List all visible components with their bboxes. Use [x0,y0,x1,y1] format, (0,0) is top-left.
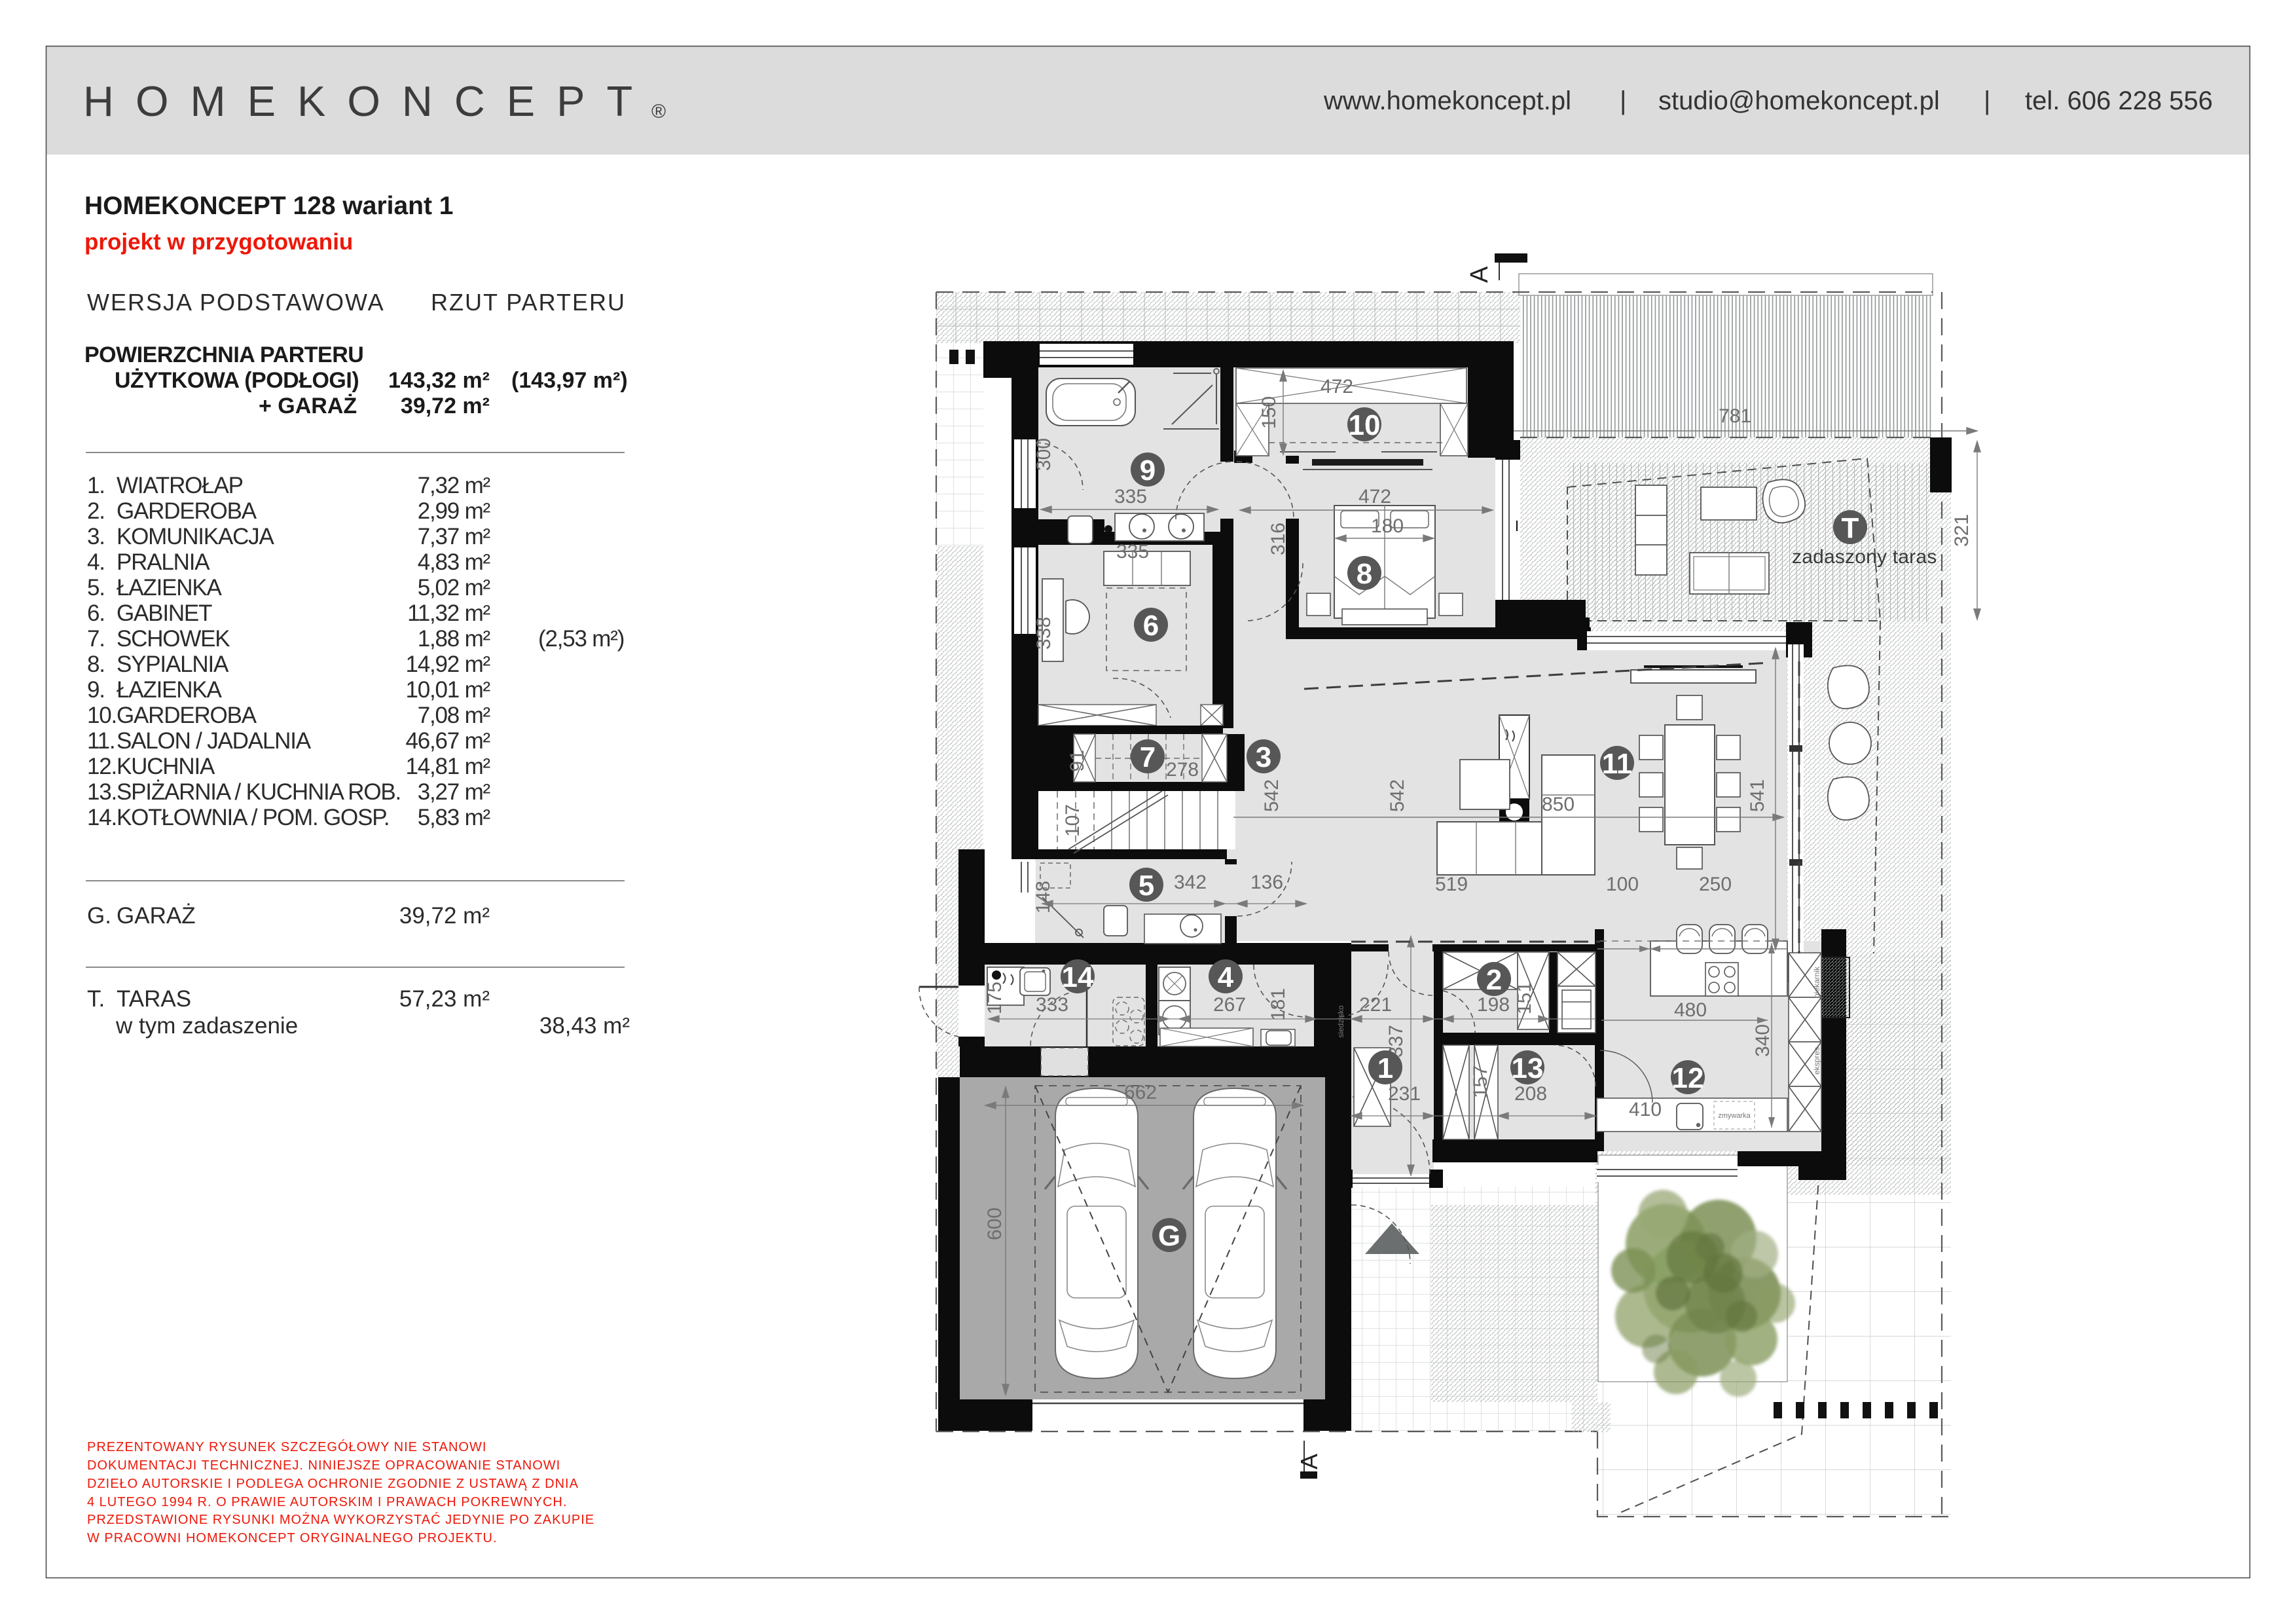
svg-text:410: 410 [1629,1099,1662,1120]
svg-text:GABINET: GABINET [117,600,212,626]
svg-text:221: 221 [1359,994,1392,1016]
svg-text:studio@homekoncept.pl: studio@homekoncept.pl [1658,86,1940,115]
svg-text:10,01 m²: 10,01 m² [405,677,490,703]
svg-text:ekspres: ekspres [1812,1047,1821,1075]
svg-text:GARDEROBA: GARDEROBA [117,498,257,524]
svg-text:piekarnik: piekarnik [1812,966,1821,998]
svg-text:340: 340 [1752,1024,1774,1057]
svg-text:91: 91 [1066,750,1088,771]
svg-text:5,02 m²: 5,02 m² [418,575,490,600]
svg-text:W PRACOWNI HOMEKONCEPT ORYGINA: W PRACOWNI HOMEKONCEPT ORYGINALNEGO PROJ… [87,1531,498,1545]
svg-text:480: 480 [1674,999,1707,1021]
svg-text:316: 316 [1267,523,1289,555]
svg-text:tel. 606 228 556: tel. 606 228 556 [2025,86,2213,115]
svg-text:(143,97 m²): (143,97 m²) [511,368,628,393]
svg-text:SPIŻARNIA / KUCHNIA ROB.: SPIŻARNIA / KUCHNIA ROB. [117,779,401,805]
svg-text:542: 542 [1261,779,1283,812]
svg-text:300: 300 [1033,438,1055,471]
svg-text:9.: 9. [87,677,105,703]
svg-text:11.: 11. [87,728,115,754]
svg-text:KOTŁOWNIA / POM. GOSP.: KOTŁOWNIA / POM. GOSP. [117,805,389,830]
svg-text:250: 250 [1699,874,1732,895]
svg-text:150: 150 [1258,396,1280,429]
svg-text:39,72 m²: 39,72 m² [399,903,490,929]
svg-text:|: | [1984,86,1990,115]
svg-text:850: 850 [1542,794,1575,815]
svg-text:www.homekoncept.pl: www.homekoncept.pl [1323,86,1571,115]
svg-text:472: 472 [1321,376,1353,397]
svg-text:10: 10 [1349,409,1381,441]
svg-text:57,23 m²: 57,23 m² [399,986,490,1012]
svg-text:GARAŻ: GARAŻ [117,903,196,929]
svg-text:2: 2 [1486,964,1502,996]
svg-text:SYPIALNIA: SYPIALNIA [117,652,229,677]
svg-text:T.: T. [87,986,105,1012]
svg-text:175: 175 [984,982,1006,1014]
svg-text:8: 8 [1357,558,1372,590]
svg-text:4: 4 [1218,961,1234,993]
svg-text:2,99 m²: 2,99 m² [418,498,490,524]
svg-text:3,27 m²: 3,27 m² [418,779,490,805]
svg-text:143,32 m²: 143,32 m² [388,368,490,393]
svg-text:projekt w przygotowaniu: projekt w przygotowaniu [84,229,353,255]
svg-text:5.: 5. [87,575,105,600]
svg-text:7,32 m²: 7,32 m² [418,473,490,498]
svg-text:148: 148 [1032,881,1054,913]
svg-text:542: 542 [1387,779,1408,812]
svg-text:ŁAZIENKA: ŁAZIENKA [117,677,222,703]
svg-text:PRZEDSTAWIONE RYSUNKI MOŻNA WY: PRZEDSTAWIONE RYSUNKI MOŻNA WYKORZYSTAĆ … [87,1512,594,1527]
svg-text:11,32 m²: 11,32 m² [407,600,490,626]
svg-text:HOMEKONCEPT: HOMEKONCEPT [83,77,654,125]
svg-text:14: 14 [1062,961,1094,993]
svg-text:DOKUMENTACJI TECHNICZNEJ. NINI: DOKUMENTACJI TECHNICZNEJ. NINIEJSZE OPRA… [87,1458,560,1473]
svg-text:WERSJA PODSTAWOWA: WERSJA PODSTAWOWA [87,289,385,316]
svg-text:PRALNIA: PRALNIA [117,549,210,575]
svg-text:14,92 m²: 14,92 m² [405,652,490,677]
svg-text:13.: 13. [87,779,117,805]
svg-text:6: 6 [1143,610,1159,642]
svg-text:G: G [1158,1220,1180,1252]
svg-text:662: 662 [1124,1082,1157,1103]
svg-text:107: 107 [1062,804,1084,837]
svg-text:3.: 3. [87,524,105,549]
svg-text:T: T [1842,512,1859,544]
svg-text:198: 198 [1477,994,1510,1016]
svg-text:321: 321 [1951,514,1973,547]
svg-text:180: 180 [1371,515,1404,537]
svg-text:siedzisko: siedzisko [1336,1005,1345,1038]
svg-text:1,88 m²: 1,88 m² [418,626,490,652]
svg-text:335: 335 [1116,541,1149,563]
svg-text:A: A [1466,266,1493,283]
svg-text:7,08 m²: 7,08 m² [418,703,490,728]
svg-text:11: 11 [1602,748,1633,780]
svg-text:2.: 2. [87,498,105,524]
svg-text:|: | [1620,86,1626,115]
svg-text:1: 1 [1377,1052,1393,1084]
svg-text:13: 13 [1512,1052,1544,1084]
svg-text:151: 151 [1514,982,1535,1014]
svg-text:8.: 8. [87,652,105,677]
svg-text:GARDEROBA: GARDEROBA [117,703,257,728]
svg-text:342: 342 [1174,872,1207,893]
svg-text:231: 231 [1388,1083,1421,1105]
svg-text:zadaszony taras: zadaszony taras [1792,546,1937,568]
svg-text:7,37 m²: 7,37 m² [418,524,490,549]
svg-text:136: 136 [1250,872,1283,893]
svg-text:335: 335 [1114,486,1147,507]
svg-text:6.: 6. [87,600,105,626]
svg-text:7: 7 [1140,741,1156,773]
svg-text:9: 9 [1140,454,1156,487]
svg-text:1.: 1. [87,473,105,498]
svg-text:208: 208 [1514,1083,1547,1105]
svg-text:541: 541 [1747,779,1768,812]
svg-text:12: 12 [1672,1062,1704,1094]
svg-text:KUCHNIA: KUCHNIA [117,754,215,779]
svg-text:DZIEŁO AUTORSKIE I PODLEGA OCH: DZIEŁO AUTORSKIE I PODLEGA OCHRONIE ZGOD… [87,1477,579,1491]
svg-text:4 LUTEGO 1994 R. O PRAWIE AUTO: 4 LUTEGO 1994 R. O PRAWIE AUTORSKIM I PR… [87,1495,567,1509]
svg-text:519: 519 [1435,874,1468,895]
svg-text:781: 781 [1719,405,1751,427]
svg-text:10.: 10. [87,703,117,728]
svg-text:4,83 m²: 4,83 m² [418,549,490,575]
svg-text:POWIERZCHNIA PARTERU: POWIERZCHNIA PARTERU [84,342,363,367]
svg-text:®: ® [651,101,666,122]
svg-text:278: 278 [1166,759,1199,781]
svg-text:3: 3 [1256,741,1271,773]
svg-text:A: A [1296,1454,1322,1469]
svg-text:(2,53 m²): (2,53 m²) [538,626,624,652]
svg-text:7.: 7. [87,626,105,652]
svg-text:SALON / JADALNIA: SALON / JADALNIA [117,728,312,754]
svg-text:+ GARAŻ: + GARAŻ [259,394,357,418]
svg-text:14.: 14. [87,805,117,830]
svg-text:WIATROŁAP: WIATROŁAP [117,473,243,498]
svg-text:w tym zadaszenie: w tym zadaszenie [115,1013,298,1039]
svg-text:12.: 12. [87,754,117,779]
svg-text:4.: 4. [87,549,105,575]
svg-text:14,81 m²: 14,81 m² [405,754,490,779]
svg-text:zmywarka: zmywarka [1718,1112,1751,1120]
svg-text:KOMUNIKACJA: KOMUNIKACJA [117,524,274,549]
svg-text:HOMEKONCEPT 128 wariant 1: HOMEKONCEPT 128 wariant 1 [84,192,453,220]
svg-text:5,83 m²: 5,83 m² [418,805,490,830]
svg-text:472: 472 [1358,486,1391,507]
svg-text:267: 267 [1213,994,1246,1016]
svg-text:PREZENTOWANY RYSUNEK SZCZEGÓŁO: PREZENTOWANY RYSUNEK SZCZEGÓŁOWY NIE STA… [87,1439,486,1454]
svg-text:338: 338 [1033,617,1055,650]
svg-text:RZUT PARTERU: RZUT PARTERU [431,289,626,316]
svg-text:100: 100 [1606,874,1639,895]
svg-text:SCHOWEK: SCHOWEK [117,626,230,652]
svg-text:G.: G. [87,903,111,929]
svg-text:38,43 m²: 38,43 m² [539,1013,630,1039]
svg-text:TARAS: TARAS [117,986,191,1012]
svg-text:600: 600 [984,1208,1006,1240]
svg-text:333: 333 [1036,994,1068,1016]
svg-text:5: 5 [1139,870,1154,902]
svg-text:39,72 m²: 39,72 m² [401,394,490,418]
svg-text:ŁAZIENKA: ŁAZIENKA [117,575,222,600]
svg-text:UŻYTKOWA (PODŁOGI): UŻYTKOWA (PODŁOGI) [115,368,359,393]
svg-text:157: 157 [1470,1065,1491,1098]
svg-text:181: 181 [1267,988,1289,1021]
svg-text:46,67 m²: 46,67 m² [405,728,490,754]
